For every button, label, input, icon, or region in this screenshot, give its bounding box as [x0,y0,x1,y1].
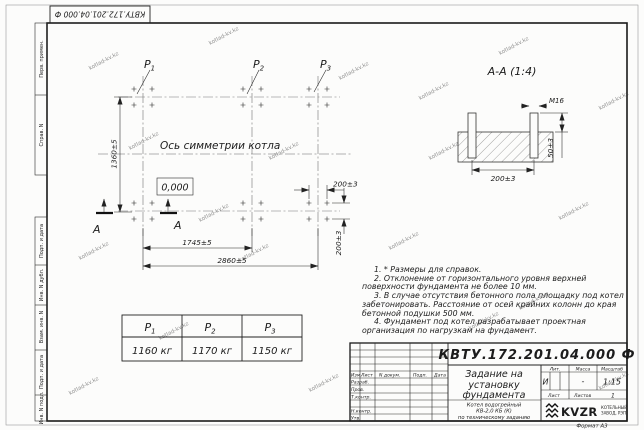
doc-title-line: фундамента [463,390,526,401]
section-view-a-a: А-А (1:4) М16 200±3 50±3 [458,65,568,183]
load-point-label-p3: Р3 [320,58,331,73]
watermark-text: kotlad-kv.kz [78,241,110,262]
product-line: КВ-2,0 КБ (К) [476,409,512,415]
masshtab-label: Масштаб [601,367,623,373]
row-nkontr: Н.контр. [351,408,372,414]
table-header-p1: Р1 [144,321,155,336]
dim-200-y: 200±3 [334,230,343,255]
table-header-p3: Р3 [264,321,275,336]
drawing-linework: kotlad-kv.kzkotlad-kv.kzkotlad-kv.kzkotl… [0,0,644,430]
strip-label: Инв. N дубл. [39,268,45,301]
watermark-layer: kotlad-kv.kzkotlad-kv.kzkotlad-kv.kzkotl… [68,26,630,397]
strip-label: Подп. и дата [39,355,45,389]
strip-label: Взам. инв. N [39,311,45,344]
col-podp: Подп. [413,373,427,379]
technical-notes: 1. * Размеры для справок. 2. Отклонение … [362,266,628,336]
watermark-text: kotlad-kv.kz [498,36,530,57]
row-tkontr: Т.контр. [351,394,371,400]
strip-label: Подп. и дата [39,224,45,258]
watermark-text: kotlad-kv.kz [388,231,420,252]
table-value-p2: 1170 кг [192,346,233,357]
row-razrab: Разраб. [351,380,369,386]
watermark-text: kotlad-kv.kz [428,141,460,162]
note-3: 3. В случае отсутствия бетонного пола пл… [362,292,628,318]
watermark-text: kotlad-kv.kz [128,131,160,152]
watermark-text: kotlad-kv.kz [88,51,120,72]
watermark-text: kotlad-kv.kz [598,91,630,112]
dim-1360: 1360±5 [110,139,119,169]
lit-value: И [543,378,549,387]
anchor-bolt-right [530,113,538,158]
load-point-label-p1: Р1 [144,58,155,73]
dim-200-x: 200±3 [333,180,358,189]
dim-2860: 2860±5 [217,256,247,265]
massa-value: - [582,377,585,386]
col-ndoc: N докум. [379,373,400,379]
load-point-label-p2: Р2 [253,58,265,73]
listov-label: Листов [573,393,591,399]
watermark-text: kotlad-kv.kz [158,321,190,342]
strip-label: Инв. N подл. [39,391,45,424]
load-table: Р1 Р2 Р3 1160 кг 1170 кг 1150 кг [122,315,302,361]
section-cut-marker-a-left: А [92,199,113,236]
watermark-text: kotlad-kv.kz [338,61,370,82]
product-line: по техническому заданию [458,415,531,421]
kvzr-logo: KVZR КОТЕЛЬНЫЙ ЗАВОД, РЭП [546,404,627,419]
watermark-text: kotlad-kv.kz [198,203,230,224]
table-value-p3: 1150 кг [252,346,293,357]
dim-section-200: 200±3 [491,174,516,183]
doc-title-line: Задание на [465,369,523,380]
row-prov: Пров. [351,387,364,393]
frame-left-strip: Перв. примен. Справ. N Подп. и дата Инв.… [35,23,47,425]
table-header-p2: Р2 [204,321,216,336]
foundation-plan-view: Р1 Р2 Р3 Ось симметрии котла 0,000 1360±… [92,58,358,270]
col-data: Дата [433,373,446,379]
masshtab-value: 1:15 [603,378,621,387]
document-designation: КВТУ.172.201.04.000 Ф [438,348,635,363]
watermark-text: kotlad-kv.kz [208,26,240,47]
engineering-drawing-sheet: kotlad-kv.kzkotlad-kv.kzkotlad-kv.kzkotl… [0,0,644,430]
strip-label: Перв. примен. [39,40,45,78]
col-list: Лист [360,373,373,379]
lit-label: Лит. [549,367,561,373]
format-label: Формат А3 [576,424,608,430]
watermark-text: kotlad-kv.kz [418,81,450,102]
watermark-text: kotlad-kv.kz [308,373,340,394]
zero-level-value: 0,000 [161,183,188,194]
note-2: 2. Отклонение от горизонтального уровня … [362,275,628,292]
section-title: А-А (1:4) [487,65,537,78]
massa-label: Масса [576,367,591,373]
list-label: Лист [547,393,560,399]
designation-rotated-text: КВТУ.172.201.04.000 Ф [54,10,145,19]
title-block: Изм. Лист N докум. Подп. Дата Разраб. Пр… [350,343,636,421]
table-value-p1: 1160 кг [132,346,173,357]
strip-label: Справ. N [39,123,45,146]
company-name-line: КОТЕЛЬНЫЙ [601,405,627,410]
company-name-line: ЗАВОД, РЭП [601,411,626,416]
watermark-text: kotlad-kv.kz [558,201,590,222]
svg-text:А: А [92,223,101,236]
bolt-thread-label: М16 [549,97,564,105]
row-utv: Утв. [351,415,361,421]
section-cut-marker-a-right: А [160,199,182,232]
watermark-text: kotlad-kv.kz [68,376,100,397]
logo-text: KVZR [561,405,598,419]
note-4: 4. Фундамент под котел разрабатывает про… [362,318,628,335]
dim-1745: 1745±5 [182,238,212,247]
svg-text:А: А [173,219,182,232]
listov-value: 1 [611,393,615,400]
dim-section-50: 50±3 [546,138,555,158]
anchor-bolt-left [468,113,476,158]
symmetry-axis-label: Ось симметрии котла [160,140,280,152]
